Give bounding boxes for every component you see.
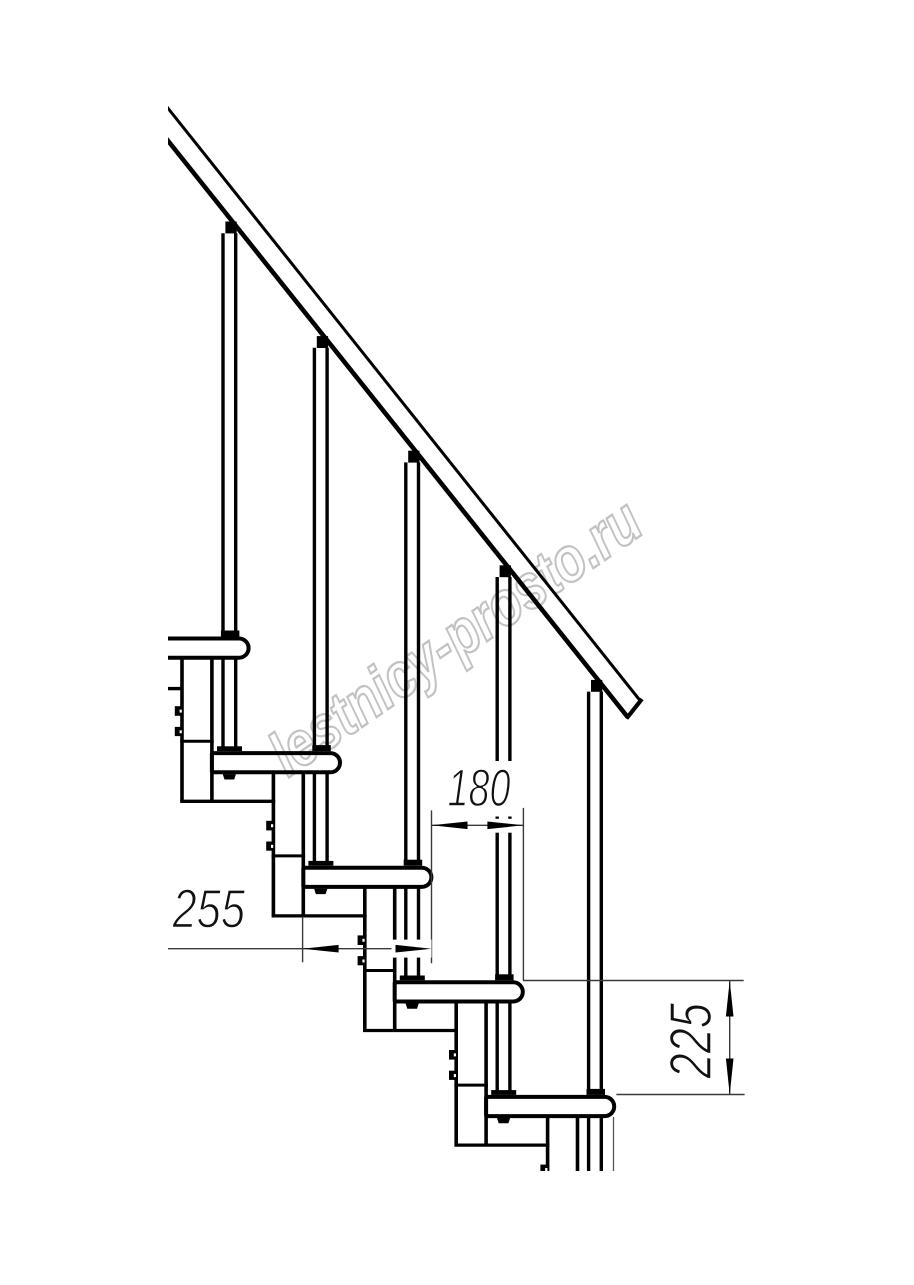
svg-text:180: 180 bbox=[448, 759, 511, 818]
svg-text:255: 255 bbox=[172, 878, 246, 940]
svg-text:225: 225 bbox=[657, 1002, 724, 1079]
